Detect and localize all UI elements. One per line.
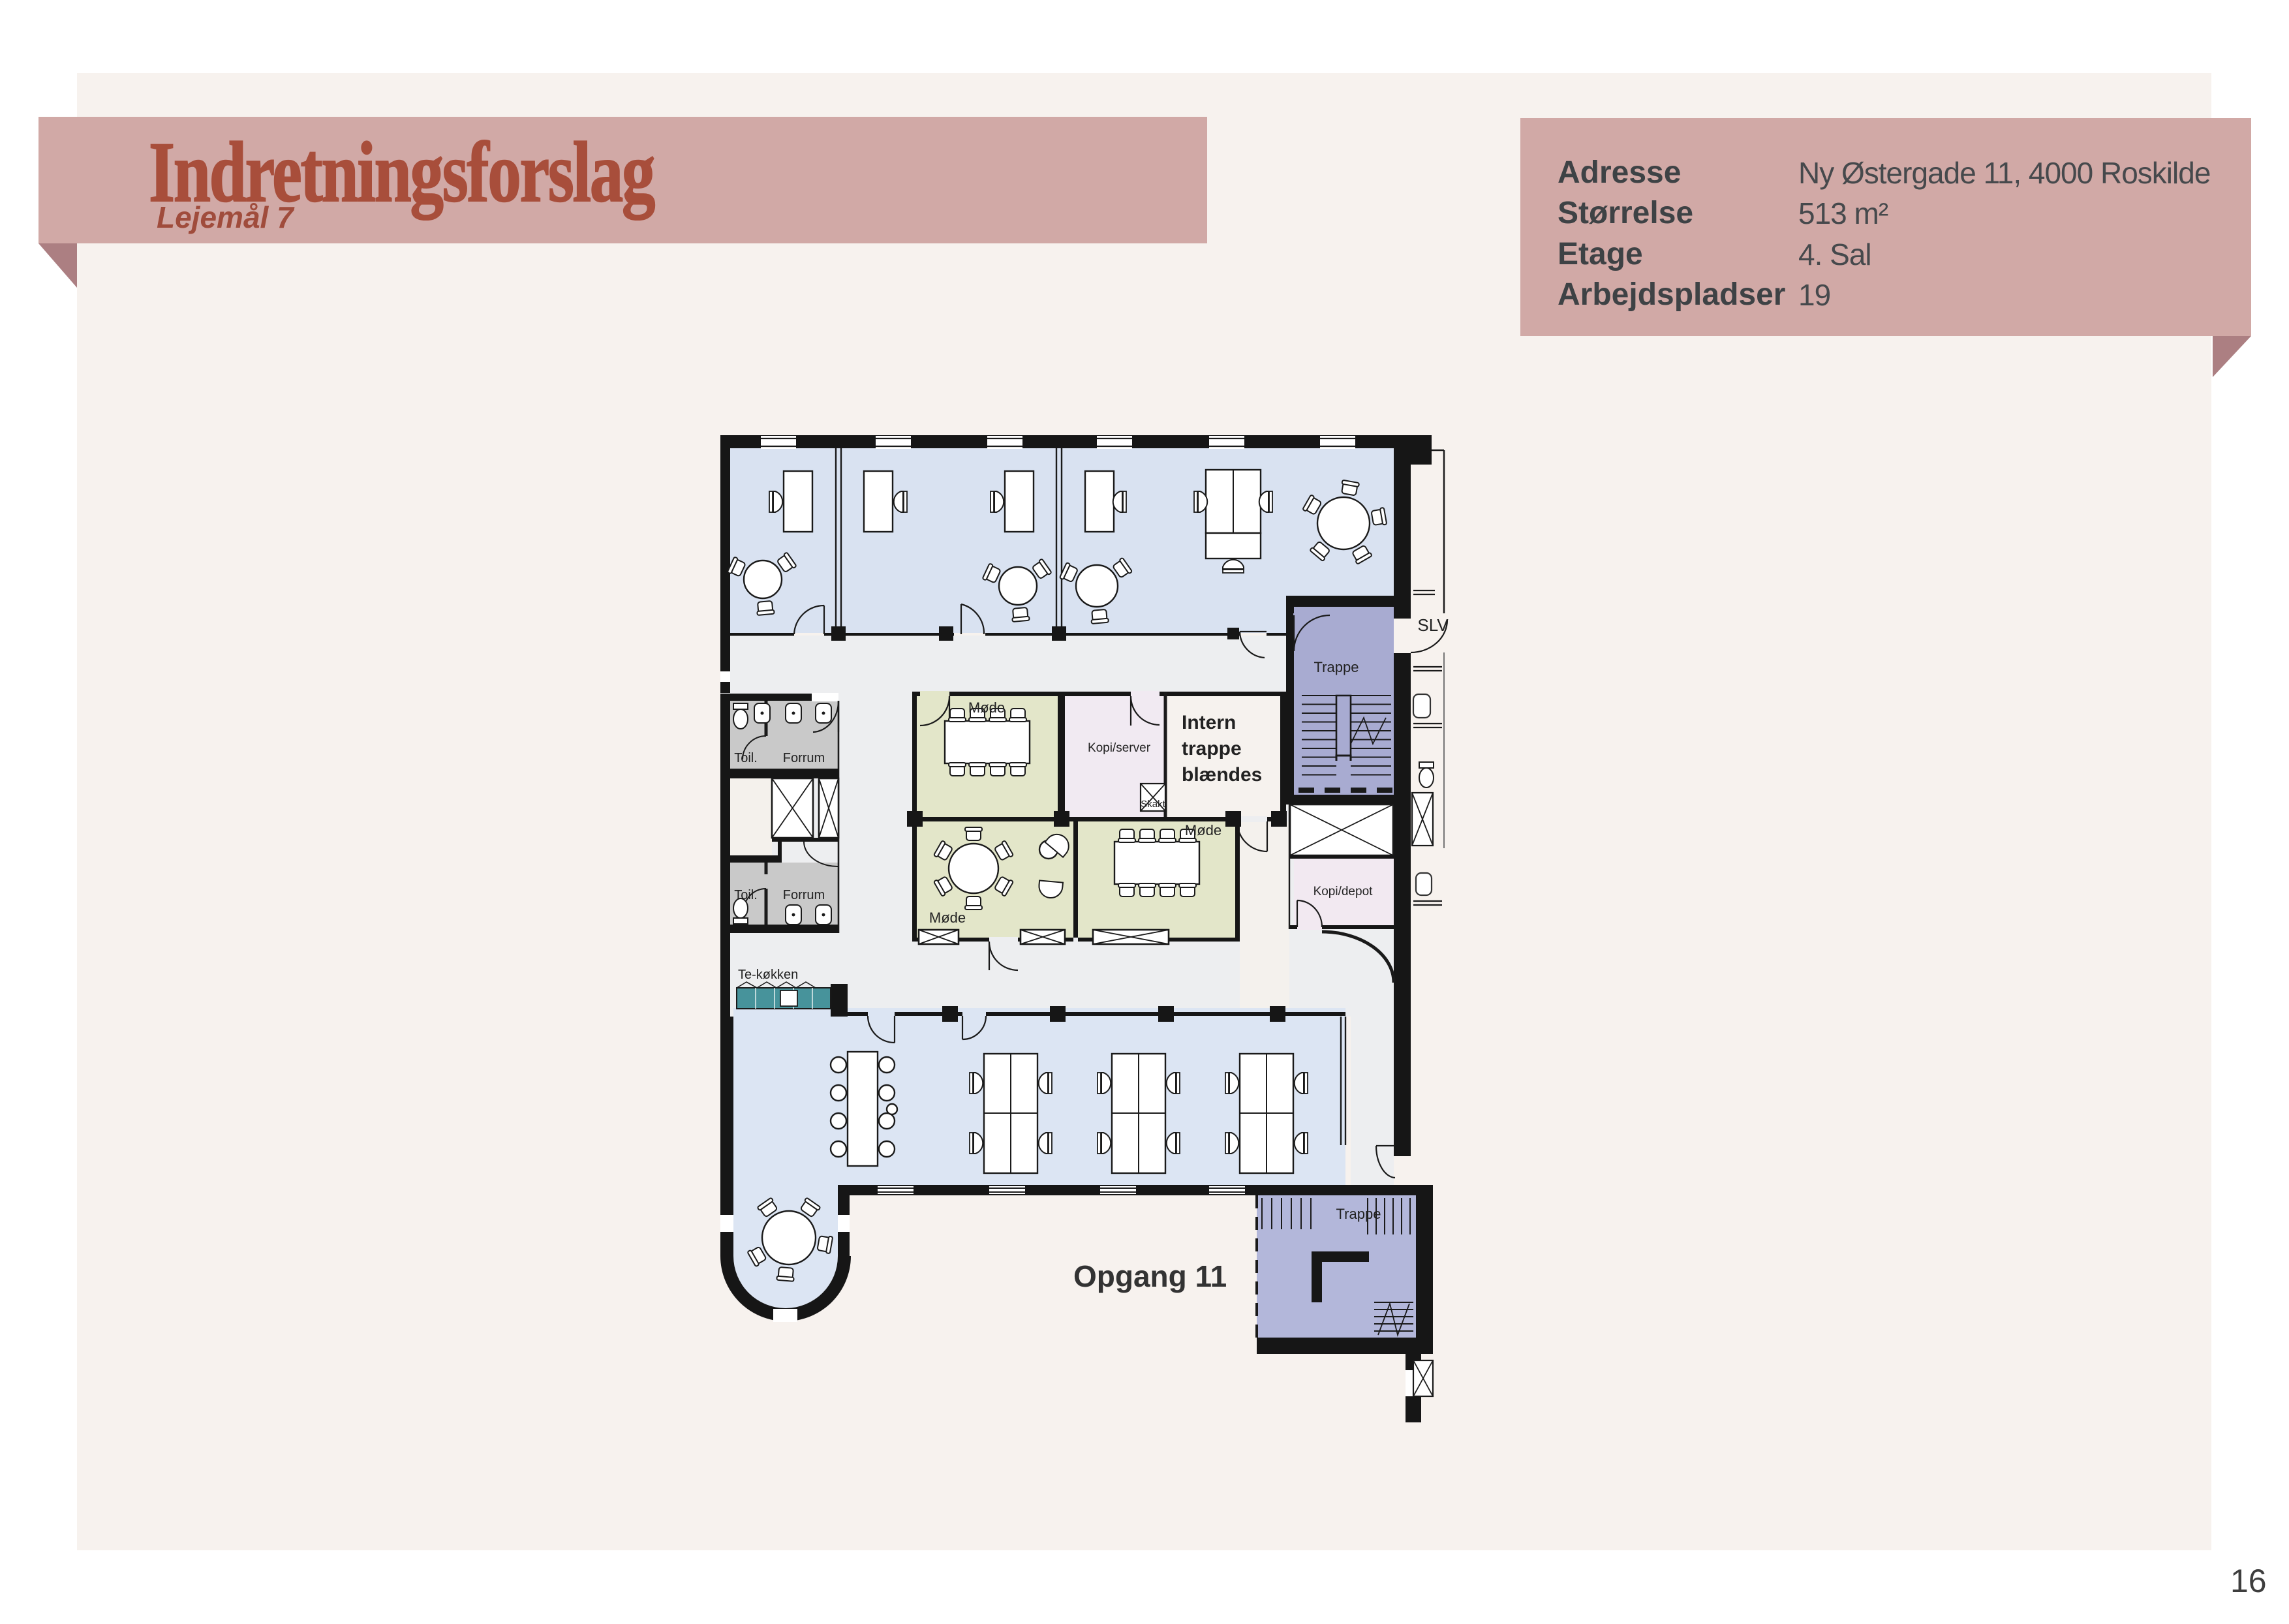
svg-text:Forrum: Forrum bbox=[783, 751, 825, 765]
svg-text:Toil.: Toil. bbox=[734, 751, 758, 765]
svg-text:Opgang 11: Opgang 11 bbox=[1073, 1259, 1227, 1293]
svg-text:Møde: Møde bbox=[929, 910, 966, 926]
svg-text:Forrum: Forrum bbox=[783, 888, 825, 902]
svg-text:Kopi/depot: Kopi/depot bbox=[1313, 885, 1374, 898]
svg-text:Te-køkken: Te-køkken bbox=[738, 968, 798, 982]
svg-text:SLV: SLV bbox=[1417, 615, 1449, 635]
svg-text:Trappe: Trappe bbox=[1336, 1206, 1381, 1222]
svg-text:Møde: Møde bbox=[1185, 822, 1221, 838]
svg-text:Trappe: Trappe bbox=[1314, 659, 1359, 675]
svg-text:Intern: Intern bbox=[1182, 712, 1236, 733]
svg-text:Toil.: Toil. bbox=[734, 888, 758, 902]
svg-text:blændes: blændes bbox=[1182, 764, 1262, 786]
svg-text:Møde: Møde bbox=[968, 699, 1005, 716]
svg-text:Skakt: Skakt bbox=[1141, 799, 1165, 810]
svg-text:trappe: trappe bbox=[1182, 738, 1242, 759]
svg-text:Kopi/server: Kopi/server bbox=[1088, 741, 1151, 755]
